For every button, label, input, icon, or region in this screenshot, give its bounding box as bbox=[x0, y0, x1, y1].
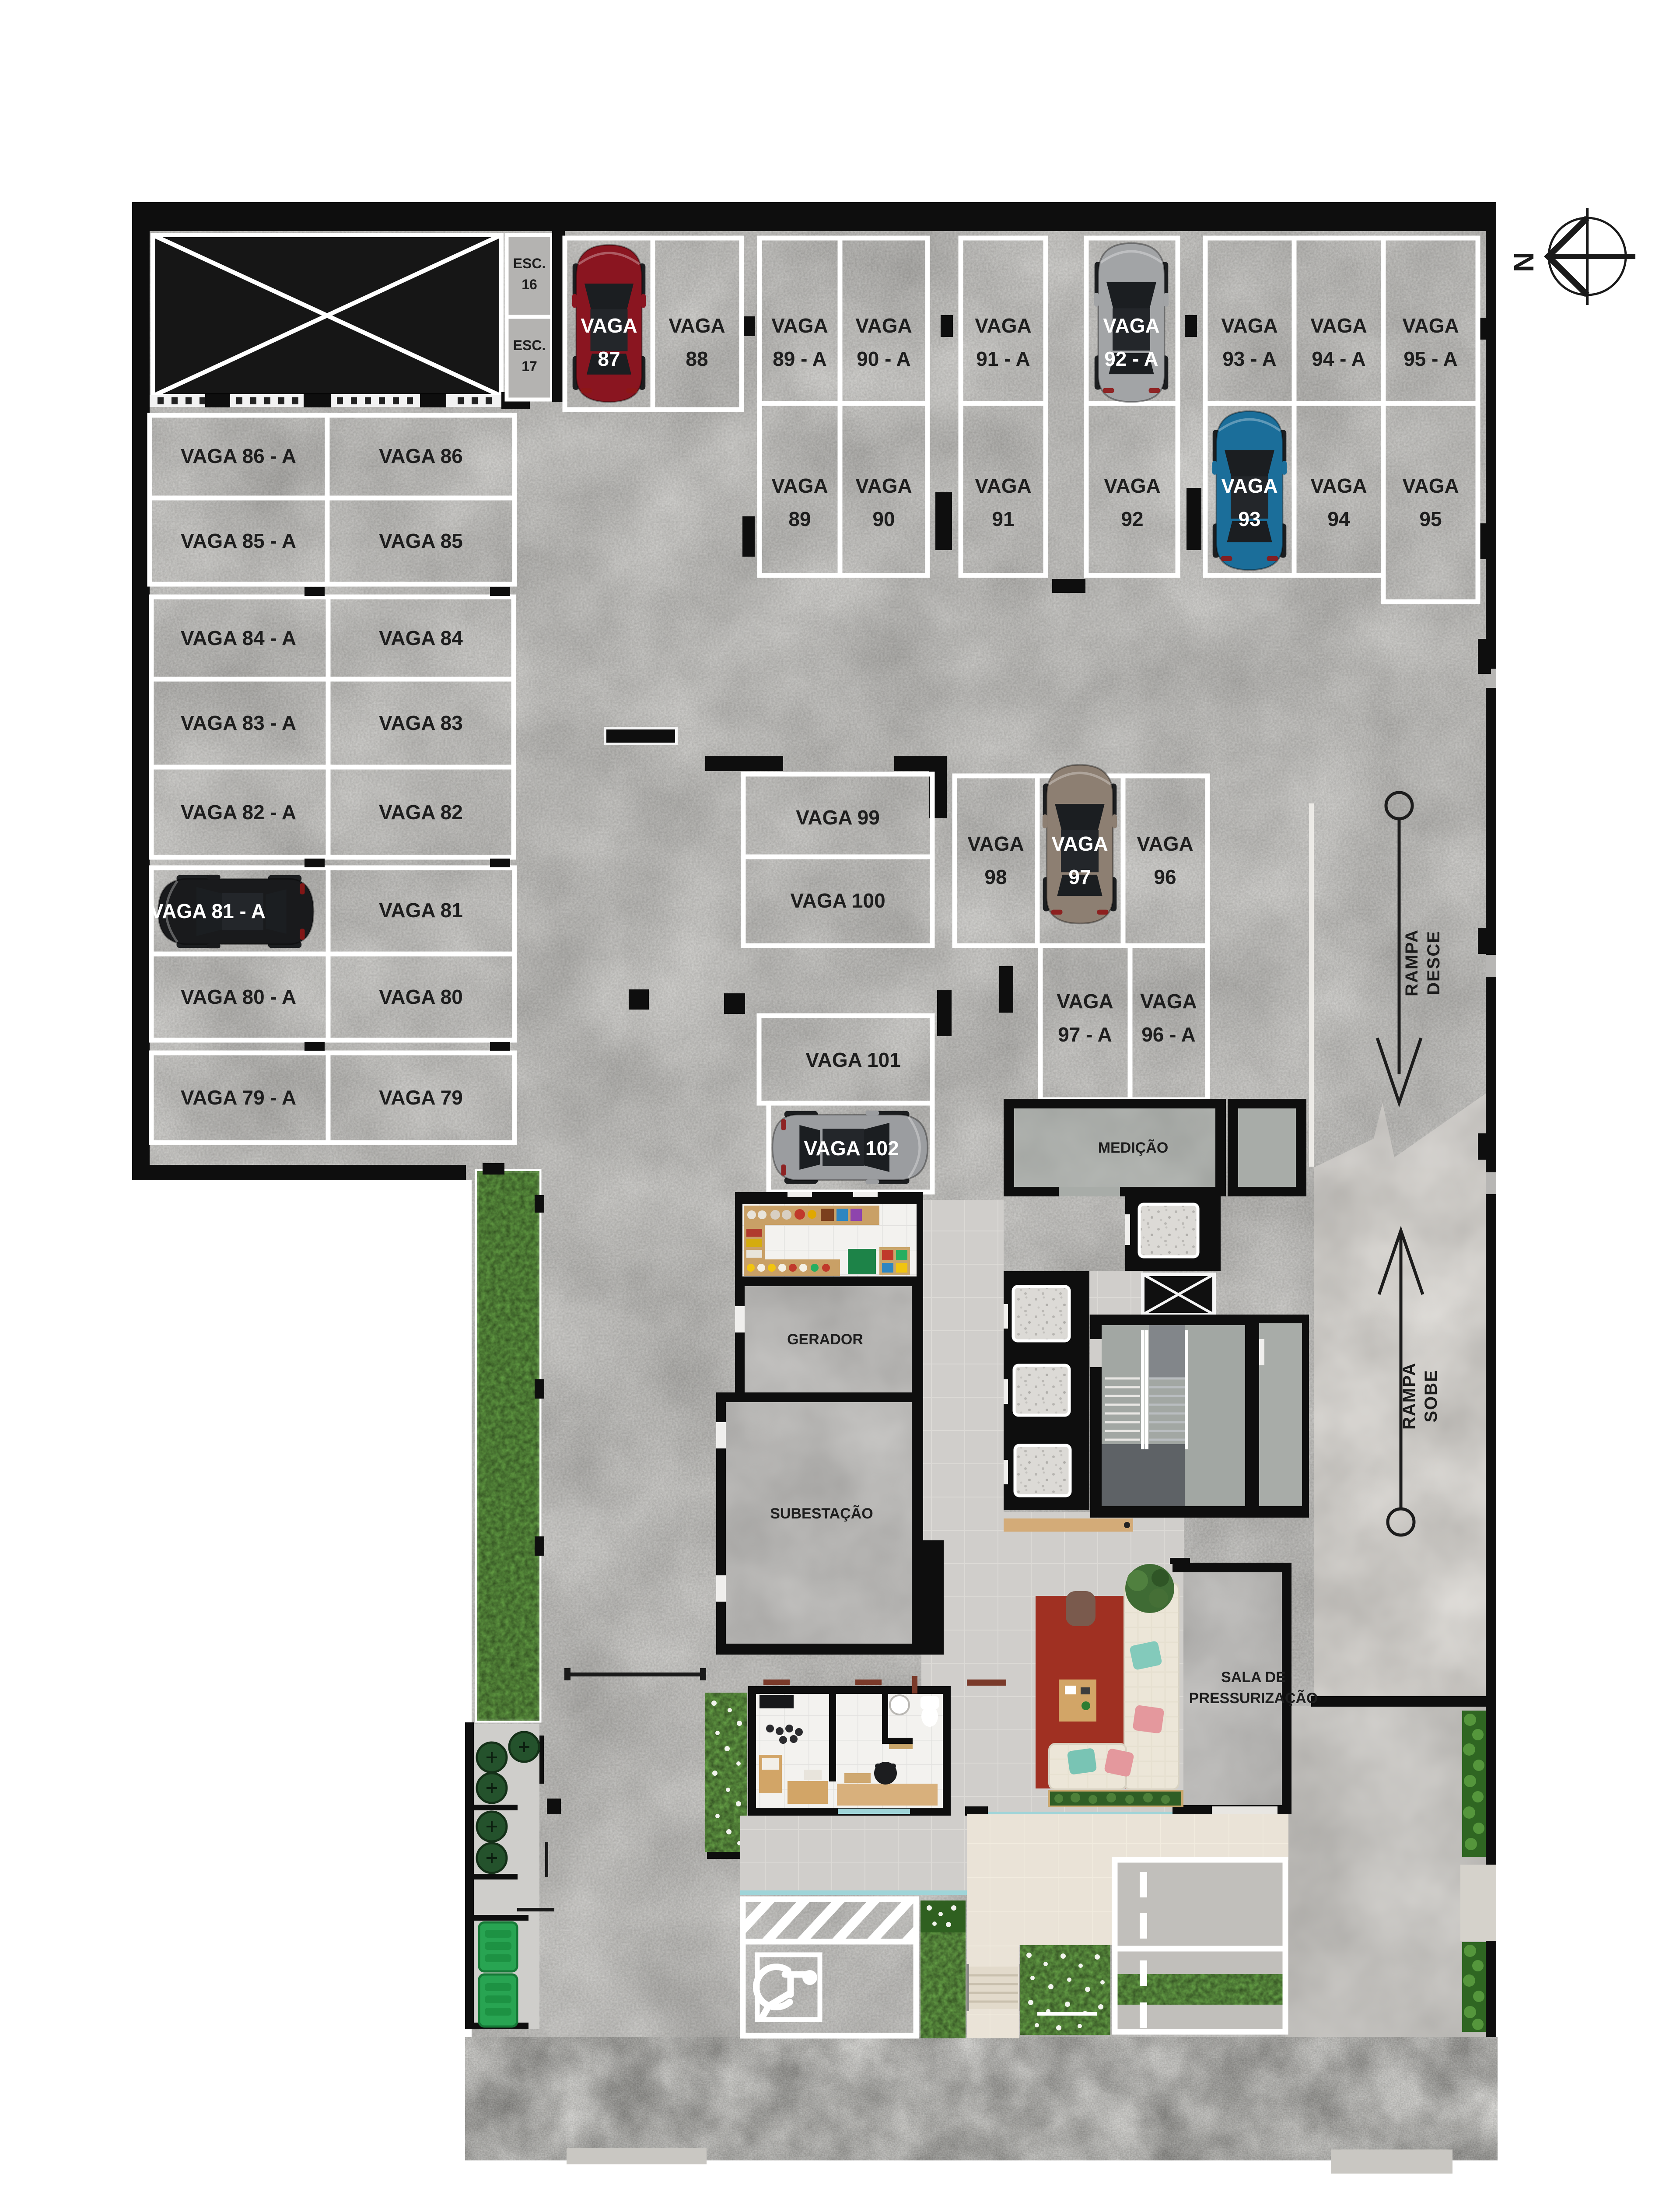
svg-text:93: 93 bbox=[1238, 508, 1260, 530]
svg-text:VAGA 80: VAGA 80 bbox=[379, 985, 463, 1008]
svg-text:VAGA: VAGA bbox=[1057, 990, 1113, 1013]
svg-text:VAGA 100: VAGA 100 bbox=[790, 889, 885, 912]
svg-text:VAGA 82: VAGA 82 bbox=[379, 801, 463, 824]
svg-text:93 - A: 93 - A bbox=[1222, 347, 1277, 370]
svg-text:VAGA 83 - A: VAGA 83 - A bbox=[181, 712, 296, 734]
svg-text:VAGA: VAGA bbox=[581, 314, 637, 337]
svg-text:VAGA 80 - A: VAGA 80 - A bbox=[181, 985, 296, 1008]
svg-text:97: 97 bbox=[1068, 866, 1091, 888]
svg-text:VAGA 84 - A: VAGA 84 - A bbox=[181, 627, 296, 649]
svg-text:VAGA 86 - A: VAGA 86 - A bbox=[181, 445, 296, 467]
svg-text:VAGA: VAGA bbox=[1402, 314, 1459, 337]
svg-text:VAGA 101: VAGA 101 bbox=[805, 1048, 900, 1071]
svg-text:SALA DE: SALA DE bbox=[1221, 1669, 1286, 1686]
svg-text:VAGA 79 - A: VAGA 79 - A bbox=[181, 1086, 296, 1109]
svg-text:95: 95 bbox=[1419, 508, 1442, 530]
svg-text:VAGA: VAGA bbox=[1402, 474, 1459, 497]
svg-text:88: 88 bbox=[686, 347, 708, 370]
svg-text:90: 90 bbox=[872, 508, 895, 530]
svg-text:VAGA 81 - A: VAGA 81 - A bbox=[150, 900, 266, 922]
svg-text:SUBESTAÇÃO: SUBESTAÇÃO bbox=[770, 1505, 873, 1522]
svg-text:VAGA: VAGA bbox=[1104, 474, 1161, 497]
svg-text:PRESSURIZAÇÃO: PRESSURIZAÇÃO bbox=[1189, 1690, 1318, 1707]
svg-text:MEDIÇÃO: MEDIÇÃO bbox=[1098, 1140, 1169, 1156]
svg-text:VAGA 99: VAGA 99 bbox=[796, 806, 880, 829]
svg-text:95 - A: 95 - A bbox=[1403, 347, 1458, 370]
svg-text:VAGA 82 - A: VAGA 82 - A bbox=[181, 801, 296, 824]
svg-text:VAGA: VAGA bbox=[1221, 474, 1278, 497]
svg-text:VAGA 102: VAGA 102 bbox=[804, 1137, 899, 1160]
svg-text:VAGA: VAGA bbox=[771, 314, 828, 337]
svg-text:VAGA 83: VAGA 83 bbox=[379, 712, 463, 734]
svg-text:96: 96 bbox=[1154, 866, 1176, 888]
svg-text:89 - A: 89 - A bbox=[773, 347, 827, 370]
svg-text:SOBE: SOBE bbox=[1421, 1369, 1441, 1422]
svg-text:98: 98 bbox=[984, 866, 1007, 888]
svg-text:VAGA: VAGA bbox=[1310, 474, 1367, 497]
svg-text:VAGA: VAGA bbox=[1221, 314, 1278, 337]
svg-text:RAMPA: RAMPA bbox=[1402, 929, 1421, 996]
svg-text:VAGA 86: VAGA 86 bbox=[379, 445, 463, 467]
svg-text:VAGA 85 - A: VAGA 85 - A bbox=[181, 529, 296, 552]
svg-text:VAGA: VAGA bbox=[975, 314, 1032, 337]
svg-text:90 - A: 90 - A bbox=[857, 347, 911, 370]
svg-text:VAGA 79: VAGA 79 bbox=[379, 1086, 463, 1109]
svg-text:VAGA: VAGA bbox=[967, 832, 1024, 855]
svg-text:89: 89 bbox=[788, 508, 811, 530]
svg-text:ESC.: ESC. bbox=[513, 337, 546, 353]
svg-text:17: 17 bbox=[521, 358, 537, 374]
svg-text:VAGA: VAGA bbox=[771, 474, 828, 497]
svg-text:94: 94 bbox=[1327, 508, 1350, 530]
svg-text:94 - A: 94 - A bbox=[1312, 347, 1366, 370]
svg-text:VAGA: VAGA bbox=[1137, 832, 1193, 855]
svg-text:VAGA: VAGA bbox=[1310, 314, 1367, 337]
svg-text:VAGA: VAGA bbox=[1051, 832, 1108, 855]
svg-text:96 - A: 96 - A bbox=[1141, 1023, 1196, 1046]
svg-text:91: 91 bbox=[992, 508, 1014, 530]
svg-text:VAGA: VAGA bbox=[668, 314, 725, 337]
svg-text:VAGA 84: VAGA 84 bbox=[379, 627, 463, 649]
svg-text:VAGA: VAGA bbox=[855, 474, 912, 497]
svg-text:92 - A: 92 - A bbox=[1104, 347, 1158, 370]
svg-text:VAGA: VAGA bbox=[1103, 314, 1160, 337]
svg-text:87: 87 bbox=[598, 347, 620, 370]
svg-text:VAGA 85: VAGA 85 bbox=[379, 529, 463, 552]
svg-text:RAMPA: RAMPA bbox=[1400, 1362, 1419, 1430]
svg-text:DESCE: DESCE bbox=[1424, 930, 1443, 995]
svg-text:N: N bbox=[1508, 251, 1540, 272]
svg-text:97 - A: 97 - A bbox=[1058, 1023, 1112, 1046]
svg-text:16: 16 bbox=[521, 277, 537, 292]
svg-text:VAGA: VAGA bbox=[855, 314, 912, 337]
svg-text:GERADOR: GERADOR bbox=[787, 1331, 863, 1348]
svg-text:92: 92 bbox=[1121, 508, 1143, 530]
svg-text:ESC.: ESC. bbox=[513, 256, 546, 271]
svg-text:VAGA: VAGA bbox=[975, 474, 1032, 497]
svg-text:VAGA: VAGA bbox=[1140, 990, 1197, 1013]
svg-text:VAGA 81: VAGA 81 bbox=[379, 899, 463, 922]
svg-text:91 - A: 91 - A bbox=[976, 347, 1030, 370]
